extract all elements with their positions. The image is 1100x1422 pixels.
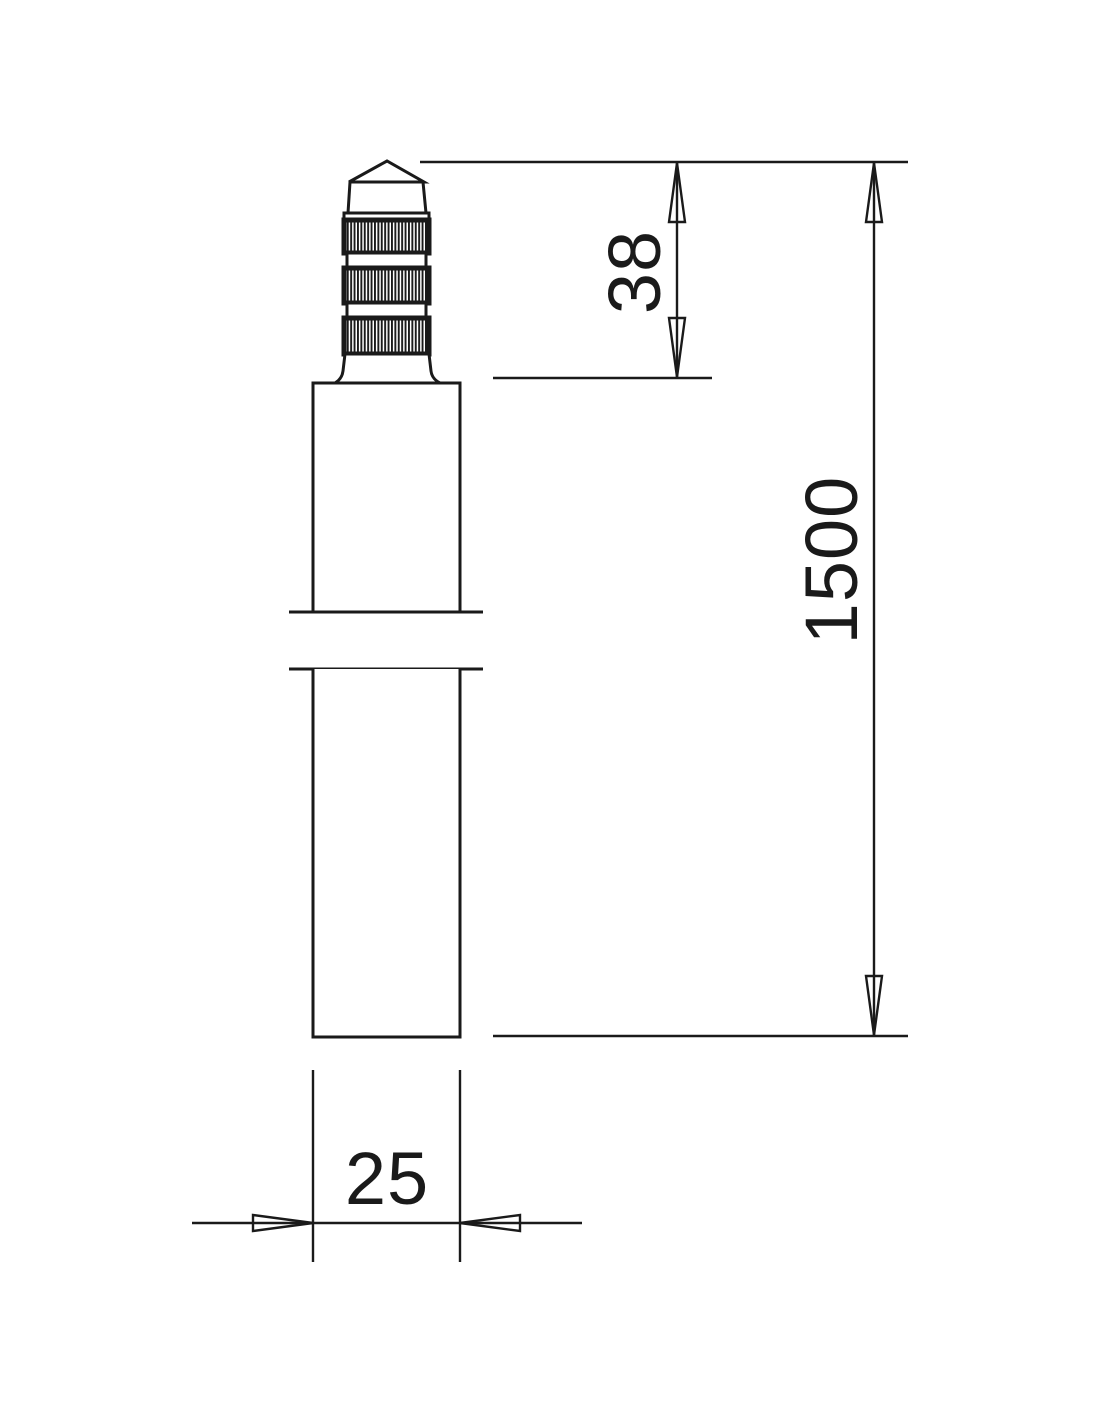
pole-tip-cap xyxy=(348,182,426,213)
pole-tip-apex xyxy=(349,161,424,182)
dim-label-overall-length: 1500 xyxy=(790,476,873,645)
dim-tip-length: 38 xyxy=(420,162,908,378)
dim-label-diameter: 25 xyxy=(345,1137,429,1220)
pole-neck-flare xyxy=(335,354,440,383)
pole-body-upper xyxy=(313,383,460,612)
drawing-page: 38 1500 25 xyxy=(0,0,1100,1422)
dimension-drawing-canvas: 38 1500 25 xyxy=(0,0,1100,1422)
knurled-band-3 xyxy=(344,318,429,354)
pole-body-lower xyxy=(313,669,460,1037)
dim-overall-length: 1500 xyxy=(493,162,908,1036)
pole xyxy=(289,161,483,1037)
dim-label-tip-length: 38 xyxy=(593,230,676,314)
knurled-band-2 xyxy=(344,268,429,303)
knurled-band-1 xyxy=(344,220,429,253)
dim-diameter: 25 xyxy=(192,1070,582,1262)
